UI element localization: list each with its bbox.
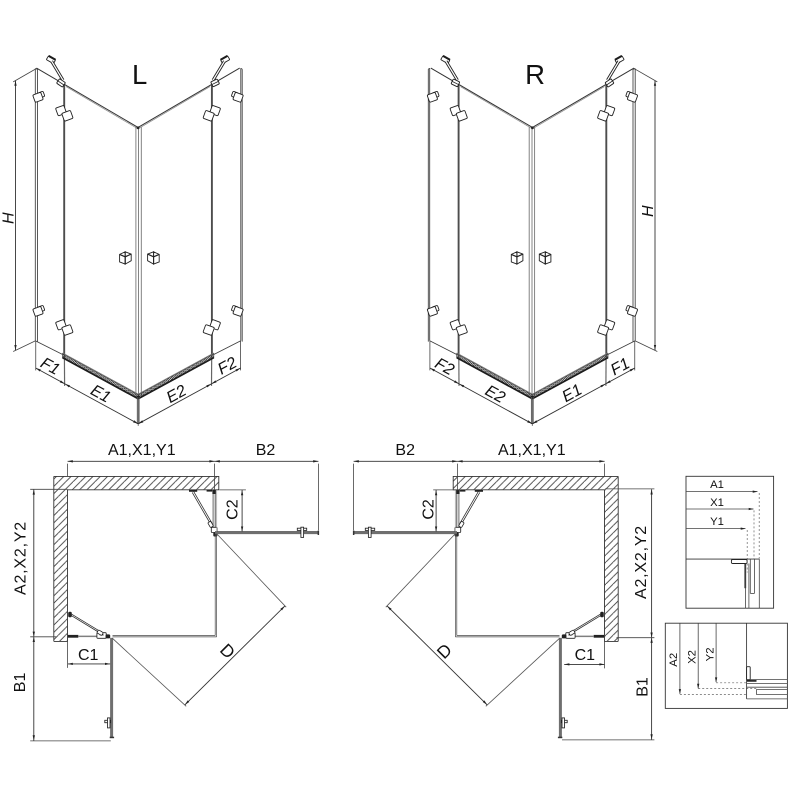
svg-text:Y1: Y1 [710,516,724,528]
svg-text:L: L [132,59,147,90]
svg-text:A2,X2,Y2: A2,X2,Y2 [13,521,30,595]
svg-text:B2: B2 [256,442,276,459]
svg-text:Y2: Y2 [704,647,716,661]
svg-text:R: R [525,59,545,90]
svg-text:A1,X1,Y1: A1,X1,Y1 [108,442,176,459]
svg-text:H: H [1,212,18,224]
svg-text:B1: B1 [635,677,652,697]
svg-text:X1: X1 [710,497,724,509]
svg-text:A2,X2,Y2: A2,X2,Y2 [633,525,650,599]
svg-text:H: H [640,205,657,217]
svg-text:C1: C1 [78,647,99,664]
svg-text:C2: C2 [224,499,241,520]
svg-text:A2: A2 [668,653,680,667]
svg-text:B1: B1 [12,673,29,693]
svg-text:A1: A1 [710,479,724,491]
svg-text:C2: C2 [420,499,437,520]
svg-text:C1: C1 [575,647,596,664]
svg-text:B2: B2 [395,442,415,459]
svg-text:X2: X2 [686,650,698,664]
svg-text:A1,X1,Y1: A1,X1,Y1 [498,442,566,459]
